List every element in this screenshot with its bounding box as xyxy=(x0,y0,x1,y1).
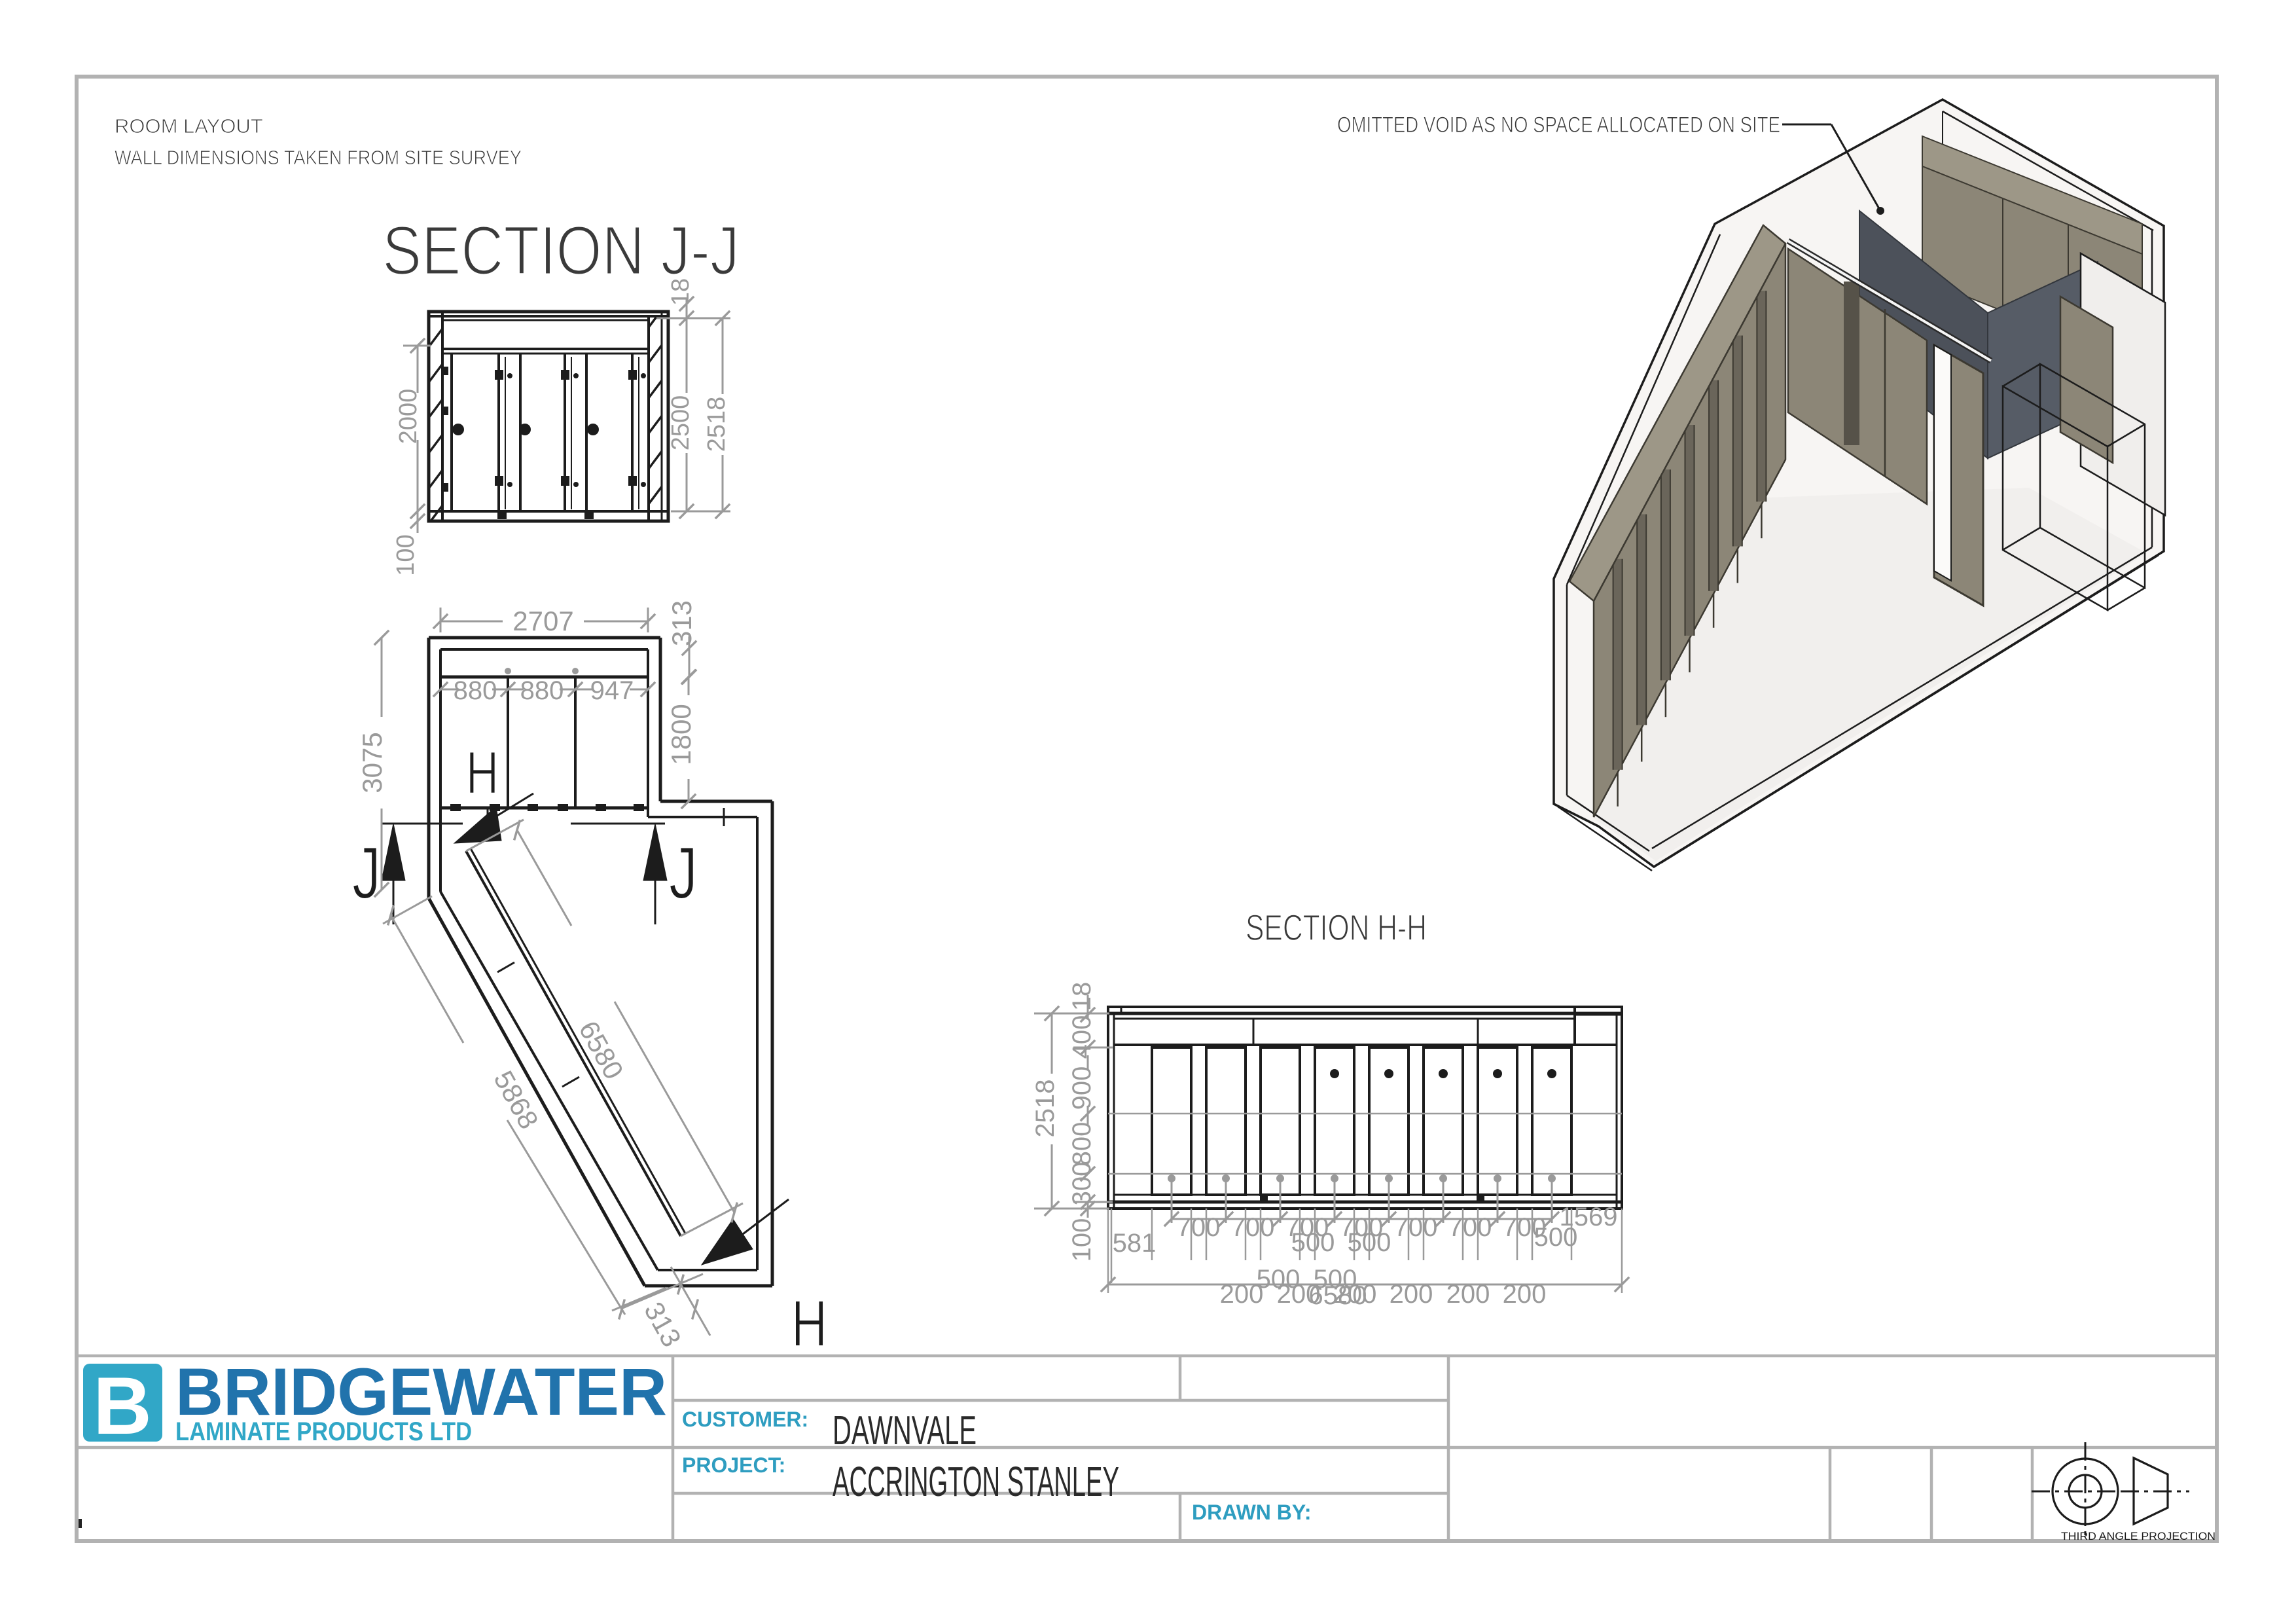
svg-text:18: 18 xyxy=(1067,982,1096,1011)
svg-text:SECTION H-H: SECTION H-H xyxy=(1246,907,1427,948)
svg-text:500: 500 xyxy=(1348,1228,1391,1257)
svg-text:1800: 1800 xyxy=(666,704,696,765)
svg-text:SECTION J-J: SECTION J-J xyxy=(382,212,740,289)
svg-text:H: H xyxy=(466,740,499,807)
svg-text:2500: 2500 xyxy=(667,395,694,451)
svg-text:700: 700 xyxy=(1231,1213,1275,1242)
svg-text:500: 500 xyxy=(1534,1223,1578,1252)
svg-text:PROJECT:: PROJECT: xyxy=(682,1453,785,1477)
svg-text:700: 700 xyxy=(1394,1213,1438,1242)
svg-text:J: J xyxy=(352,832,381,914)
svg-text:2707: 2707 xyxy=(512,606,573,636)
svg-text:900: 900 xyxy=(1067,1066,1096,1110)
svg-text:CUSTOMER:: CUSTOMER: xyxy=(682,1408,808,1431)
svg-text:800: 800 xyxy=(1067,1122,1096,1166)
svg-text:DRAWN BY:: DRAWN BY: xyxy=(1192,1501,1312,1524)
svg-text:2518: 2518 xyxy=(703,397,730,452)
svg-text:H: H xyxy=(791,1287,827,1360)
svg-text:OMITTED VOID AS NO SPACE ALLOC: OMITTED VOID AS NO SPACE ALLOCATED ON SI… xyxy=(1337,113,1780,137)
svg-text:100: 100 xyxy=(1067,1218,1096,1262)
svg-text:DAWNVALE: DAWNVALE xyxy=(833,1408,977,1453)
svg-text:700: 700 xyxy=(1177,1213,1221,1242)
svg-text:3075: 3075 xyxy=(357,732,387,793)
svg-text:300: 300 xyxy=(1067,1162,1096,1206)
svg-text:THIRD ANGLE PROJECTION: THIRD ANGLE PROJECTION xyxy=(2061,1530,2215,1542)
svg-text:ROOM LAYOUT: ROOM LAYOUT xyxy=(115,115,263,137)
svg-text:313: 313 xyxy=(666,600,697,646)
svg-text:400: 400 xyxy=(1067,1015,1096,1059)
svg-text:LAMINATE PRODUCTS LTD: LAMINATE PRODUCTS LTD xyxy=(175,1417,472,1446)
svg-text:6580: 6580 xyxy=(1309,1281,1367,1310)
svg-text:700: 700 xyxy=(1448,1213,1492,1242)
svg-text:ACCRINGTON STANLEY: ACCRINGTON STANLEY xyxy=(833,1458,1119,1505)
svg-text:947: 947 xyxy=(590,676,634,705)
svg-text:2518: 2518 xyxy=(1031,1080,1060,1138)
svg-text:J: J xyxy=(669,832,698,914)
svg-text:581: 581 xyxy=(1113,1229,1157,1258)
svg-text:100: 100 xyxy=(392,534,420,575)
svg-text:880: 880 xyxy=(520,676,564,705)
svg-text:B: B xyxy=(93,1361,152,1451)
svg-text:WALL DIMENSIONS TAKEN FROM SIT: WALL DIMENSIONS TAKEN FROM SITE SURVEY xyxy=(115,146,522,169)
svg-text:18: 18 xyxy=(667,278,694,306)
svg-text:500: 500 xyxy=(1291,1228,1335,1257)
svg-text:2000: 2000 xyxy=(395,389,422,445)
svg-text:880: 880 xyxy=(454,676,497,705)
